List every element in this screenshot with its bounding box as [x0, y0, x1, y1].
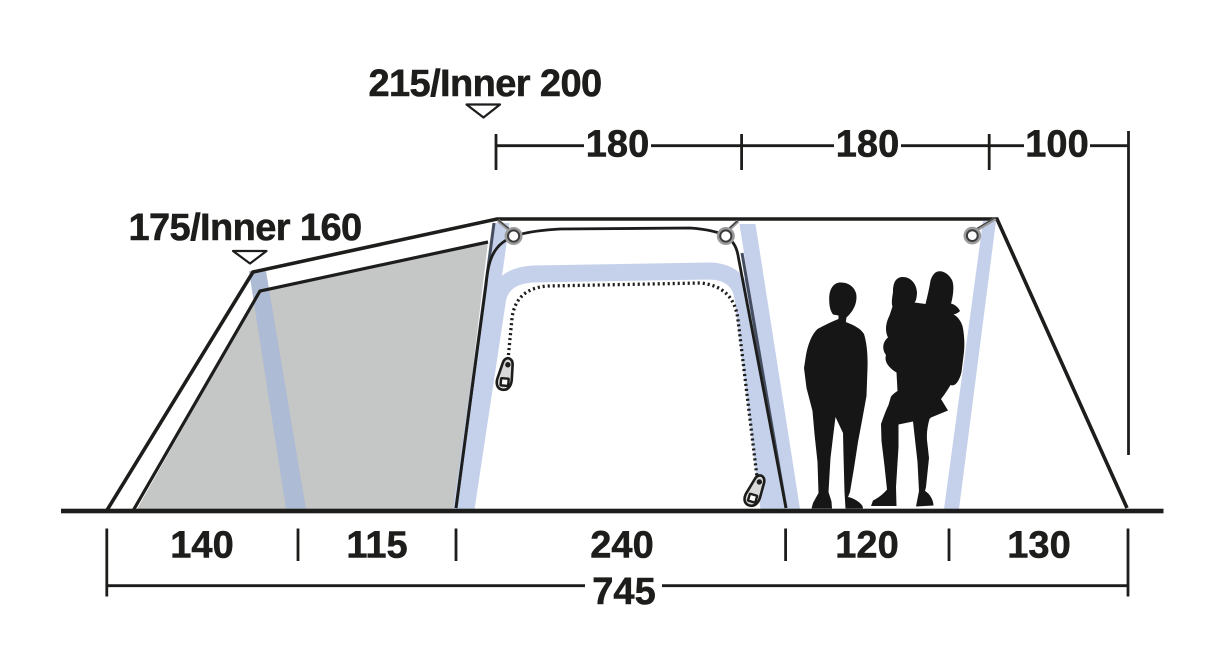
svg-text:115: 115 [346, 525, 407, 567]
svg-text:180: 180 [836, 123, 899, 165]
svg-text:120: 120 [835, 525, 898, 567]
svg-text:745: 745 [592, 571, 655, 613]
svg-text:175/Inner 160: 175/Inner 160 [128, 207, 361, 249]
svg-text:240: 240 [590, 525, 653, 567]
svg-text:140: 140 [170, 525, 233, 567]
svg-text:180: 180 [586, 123, 649, 165]
svg-text:130: 130 [1007, 525, 1070, 567]
svg-text:100: 100 [1025, 123, 1088, 165]
svg-text:215/Inner 200: 215/Inner 200 [368, 63, 601, 105]
